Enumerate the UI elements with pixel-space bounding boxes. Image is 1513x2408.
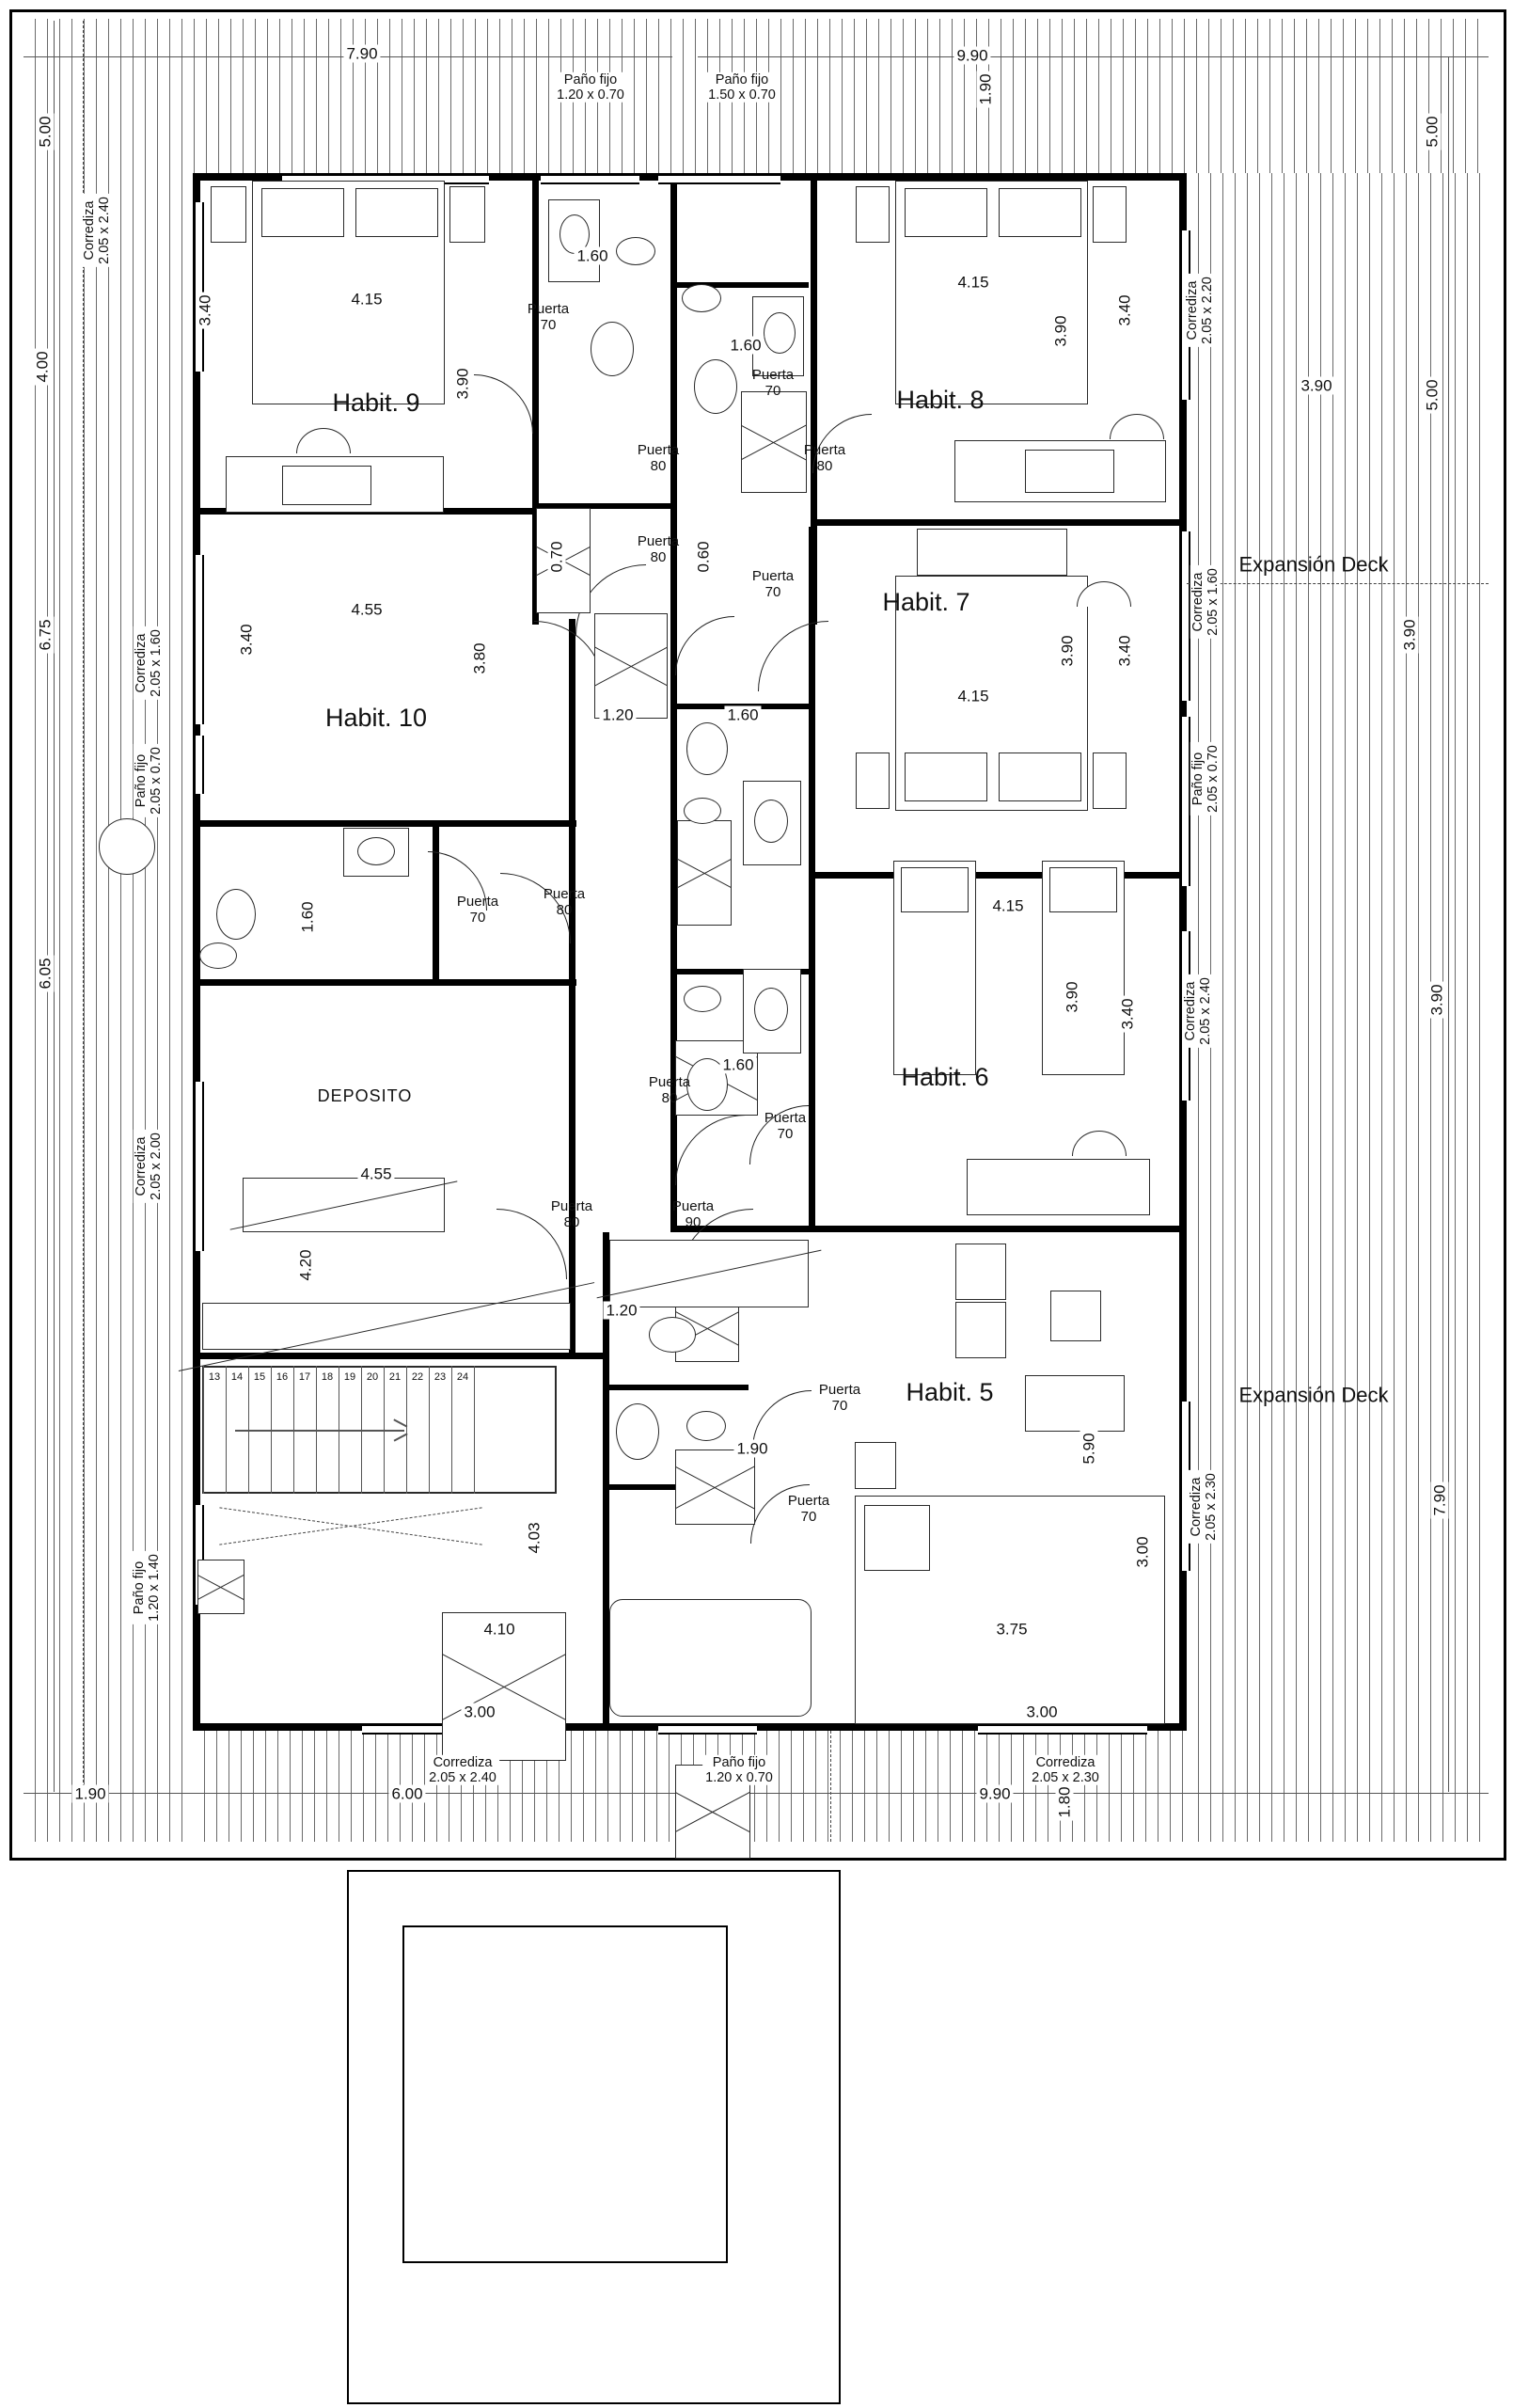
window-label: Paño fijo 2.05 x 0.70	[134, 744, 164, 817]
window-label: Corrediza 2.05 x 2.00	[134, 1130, 164, 1203]
shower	[675, 1450, 755, 1525]
dim-label: 9.90	[976, 1784, 1013, 1802]
stair-tread	[226, 1366, 227, 1494]
wall	[603, 1385, 749, 1390]
room-label: Habit. 5	[903, 1378, 996, 1406]
dashed-line-right-deck	[1187, 583, 1489, 585]
nightstand	[1093, 752, 1127, 809]
bidet	[684, 986, 721, 1012]
window-right	[1180, 717, 1190, 886]
bidet	[199, 943, 237, 969]
window-left	[194, 736, 204, 794]
dim-label: 5.90	[1080, 1430, 1097, 1466]
dim-label: 3.90	[1427, 981, 1445, 1018]
bidet	[682, 284, 721, 312]
stair-step-number: 19	[344, 1371, 355, 1383]
shower	[741, 391, 807, 493]
dim-label: 5.00	[1423, 113, 1441, 150]
stair-step-number: 22	[412, 1371, 423, 1383]
stair-tread	[474, 1366, 475, 1494]
dim-label: 4.15	[954, 687, 991, 705]
dim-label: 1.90	[976, 71, 994, 107]
dim-label: 4.20	[296, 1246, 314, 1283]
stair-step-number: 20	[367, 1371, 378, 1383]
dim-label: 3.90	[1051, 312, 1069, 349]
deck-circle	[99, 818, 155, 875]
dim-label: 1.90	[733, 1439, 770, 1457]
toilet	[686, 722, 728, 775]
door-label: Puerta 80	[801, 443, 848, 475]
toilet	[216, 889, 256, 940]
dim-label: 3.90	[1063, 978, 1080, 1015]
dim-label: 4.03	[525, 1519, 543, 1556]
window-label: Corrediza 2.05 x 2.20	[1185, 274, 1215, 347]
nightstand	[449, 186, 485, 243]
window-label: Corrediza 2.05 x 2.30	[1189, 1470, 1219, 1544]
stair-step-number: 14	[231, 1371, 243, 1383]
pillow	[905, 752, 987, 801]
window-label: Corrediza 2.05 x 1.60	[1190, 565, 1221, 639]
dim-label: 5.00	[36, 113, 54, 150]
dim-label: 6.75	[36, 616, 54, 653]
room-label: Habit. 9	[329, 388, 422, 417]
wall	[193, 979, 576, 986]
nightstand	[856, 752, 890, 809]
room-label: Habit. 7	[879, 588, 972, 616]
deck-left	[24, 173, 193, 1842]
floor-plan-canvas: Habit. 9Habit. 8Habit. 7Habit. 10Habit. …	[0, 0, 1513, 2408]
dim-label: 3.40	[1115, 632, 1133, 669]
window-top	[658, 174, 780, 184]
dim-label: 3.90	[453, 365, 471, 402]
dim-label: 1.80	[1055, 1783, 1073, 1820]
nightstand	[855, 1442, 896, 1489]
dim-label: 4.55	[348, 600, 385, 618]
dim-label: 3.90	[1400, 616, 1418, 653]
stair-step-number: 24	[457, 1371, 468, 1383]
stair-tread	[429, 1366, 430, 1494]
nightstand	[211, 186, 246, 243]
dim-label: 7.90	[1430, 1481, 1448, 1518]
room-label: DEPOSITO	[315, 1086, 416, 1105]
closet	[677, 820, 732, 926]
shower	[594, 613, 668, 719]
door-label: Puerta 70	[749, 368, 796, 400]
dim-label: 1.90	[71, 1784, 108, 1802]
pillow	[999, 752, 1081, 801]
wall	[670, 619, 677, 1232]
dim-label: 4.15	[989, 896, 1026, 914]
dashed-line-bottom-deck	[830, 1731, 832, 1842]
pillow	[261, 188, 344, 237]
dim-label: 1.20	[603, 1301, 639, 1319]
dim-line	[54, 21, 55, 1792]
dim-label: 4.00	[33, 348, 51, 385]
desk	[917, 529, 1067, 576]
counter	[609, 1240, 809, 1307]
wall	[569, 619, 575, 1353]
door-label: Puerta 70	[525, 302, 572, 334]
bidet	[686, 1411, 726, 1441]
window-bottom	[658, 1724, 757, 1735]
stair-step-number: 15	[254, 1371, 265, 1383]
storage-shelf	[202, 1303, 571, 1350]
pillow	[999, 188, 1081, 237]
dim-line	[24, 1793, 1489, 1794]
window-label: Paño fijo 1.20 x 0.70	[702, 1755, 776, 1785]
sink-basin	[764, 312, 796, 354]
pillow	[355, 188, 438, 237]
dim-label: 4.55	[357, 1164, 394, 1182]
window-left	[194, 555, 204, 724]
stair-tread	[203, 1366, 204, 1494]
stair-step-number: 18	[322, 1371, 333, 1383]
window-left	[194, 202, 204, 372]
dim-label: 9.90	[954, 46, 990, 64]
dim-label: 1.60	[574, 246, 610, 264]
desk	[967, 1159, 1150, 1215]
toilet	[591, 322, 634, 376]
sink-basin	[754, 800, 788, 843]
window-label: Corrediza 2.05 x 2.40	[1183, 974, 1213, 1048]
dim-label: 5.00	[1423, 376, 1441, 413]
sink-basin	[754, 988, 788, 1031]
window-label: Corrediza 2.05 x 2.40	[426, 1755, 499, 1785]
storage-shelf	[243, 1178, 445, 1232]
dim-line	[1448, 56, 1449, 1792]
door-label: Puerta 80	[646, 1075, 693, 1107]
nightstand	[1093, 186, 1127, 243]
door-label: Puerta 90	[670, 1199, 717, 1231]
dim-label: 3.75	[993, 1620, 1030, 1638]
pillow	[1049, 867, 1117, 912]
dim-label: 3.90	[1058, 632, 1076, 669]
dim-label: 3.90	[1298, 376, 1334, 394]
dim-label: 3.40	[1115, 292, 1133, 328]
lower-structure-outline	[347, 1870, 841, 2404]
stair-arrow	[235, 1430, 404, 1432]
stair-tread	[451, 1366, 452, 1494]
wall	[193, 820, 576, 827]
dim-label: 3.00	[461, 1703, 497, 1720]
door-label: Puerta 80	[635, 443, 682, 475]
stair-tread	[406, 1366, 407, 1494]
lower-structure-inner	[402, 1925, 728, 2263]
dim-label: 1.60	[727, 336, 764, 354]
dim-label: 3.40	[1118, 995, 1136, 1032]
wall	[811, 519, 1187, 526]
dim-label: 3.00	[1023, 1703, 1060, 1720]
bidet	[616, 237, 655, 265]
door-label: Puerta 80	[635, 534, 682, 566]
armchair	[955, 1302, 1006, 1358]
dim-label: 0.70	[547, 538, 565, 575]
room-label: Habit. 8	[893, 386, 986, 414]
room-label: Habit. 6	[898, 1063, 991, 1091]
sink-basin	[357, 837, 395, 865]
window-label: Corrediza 2.05 x 2.30	[1029, 1755, 1102, 1785]
bathtub	[609, 1599, 812, 1717]
stair-step-number: 16	[276, 1371, 288, 1383]
window-left	[194, 1082, 204, 1251]
pillow	[905, 188, 987, 237]
washer	[197, 1560, 244, 1614]
window-label: Paño fijo 1.20 x 1.40	[132, 1551, 162, 1624]
window-label: Paño fijo 1.20 x 0.70	[554, 72, 627, 103]
door-label: Puerta 70	[749, 569, 796, 601]
table	[1050, 1291, 1101, 1341]
dim-label: 4.15	[348, 290, 385, 308]
toilet	[616, 1403, 659, 1460]
armchair	[955, 1244, 1006, 1300]
window-label: Corrediza 2.05 x 1.60	[134, 626, 164, 700]
window-label: Corrediza 2.05 x 2.40	[82, 194, 112, 267]
sink-basin	[649, 1317, 696, 1353]
dim-label: 7.90	[343, 44, 380, 62]
window-top	[541, 174, 639, 184]
pillow	[864, 1505, 930, 1571]
door-label: Puerta 70	[762, 1111, 809, 1143]
stair-step-number: 23	[434, 1371, 446, 1383]
door-label: Puerta 80	[541, 887, 588, 919]
dim-label: 1.20	[599, 705, 636, 723]
door-label: Puerta 70	[816, 1383, 863, 1415]
door-label: Puerta 80	[548, 1199, 595, 1231]
window-label: Paño fijo 1.50 x 0.70	[705, 72, 779, 103]
dim-label: 3.00	[1133, 1533, 1151, 1570]
stair-step-number: 21	[389, 1371, 401, 1383]
sofa	[1025, 1375, 1125, 1432]
stair-step-number: 13	[209, 1371, 220, 1383]
bidet	[684, 798, 721, 824]
dim-label: 6.05	[36, 955, 54, 991]
dim-label: 1.60	[298, 898, 316, 935]
window-bottom	[978, 1724, 1147, 1735]
dim-label: 6.00	[388, 1784, 425, 1802]
pillow	[901, 867, 969, 912]
tv-unit	[282, 466, 371, 505]
dim-label: 3.40	[237, 621, 255, 657]
deck-label: Expansión Deck	[1237, 554, 1392, 578]
stair-step-number: 17	[299, 1371, 310, 1383]
dim-label: 1.60	[719, 1055, 756, 1073]
deck-label: Expansión Deck	[1237, 1385, 1392, 1408]
door-label: Puerta 70	[785, 1494, 832, 1526]
window-label: Paño fijo 2.05 x 0.70	[1190, 742, 1221, 816]
dashed-line-left-deck	[83, 21, 85, 1792]
dim-label: 3.40	[196, 292, 213, 328]
tv-unit	[1025, 450, 1114, 493]
dim-line	[698, 56, 1489, 57]
room-label: Habit. 10	[323, 704, 430, 732]
toilet	[694, 359, 737, 414]
nightstand	[856, 186, 890, 243]
wall	[809, 872, 1187, 879]
dim-label: 4.15	[954, 273, 991, 291]
dim-label: 4.10	[481, 1620, 517, 1638]
dim-label: 3.80	[470, 640, 488, 676]
window-right	[1180, 531, 1190, 701]
dim-label: 0.60	[694, 538, 712, 575]
dim-label: 1.60	[724, 705, 761, 723]
door-label: Puerta 70	[454, 895, 501, 927]
